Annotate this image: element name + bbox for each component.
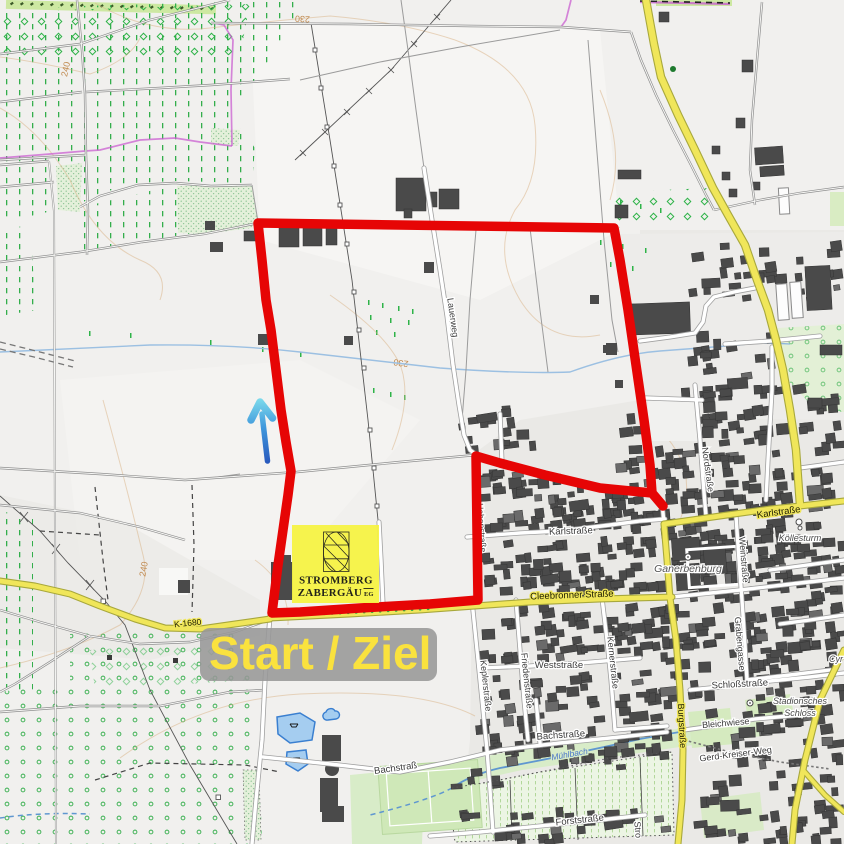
- svg-text:Cyr: Cyr: [829, 654, 844, 664]
- svg-text:ZABERGÄU: ZABERGÄU: [298, 586, 362, 599]
- svg-text:EG: EG: [364, 591, 373, 598]
- svg-text:STROMBERG: STROMBERG: [299, 575, 373, 587]
- svg-text:Stadionsches: Stadionsches: [773, 696, 828, 706]
- svg-text:Weststraße: Weststraße: [535, 660, 583, 671]
- svg-text:Köllesturm: Köllesturm: [779, 533, 822, 543]
- svg-text:Ganerbenburg: Ganerbenburg: [654, 563, 722, 575]
- svg-text:Karlstraße: Karlstraße: [549, 525, 593, 538]
- svg-text:Stro: Stro: [632, 821, 643, 838]
- svg-text:Start / Ziel: Start / Ziel: [209, 627, 431, 679]
- svg-text:Schloss: Schloss: [784, 708, 816, 718]
